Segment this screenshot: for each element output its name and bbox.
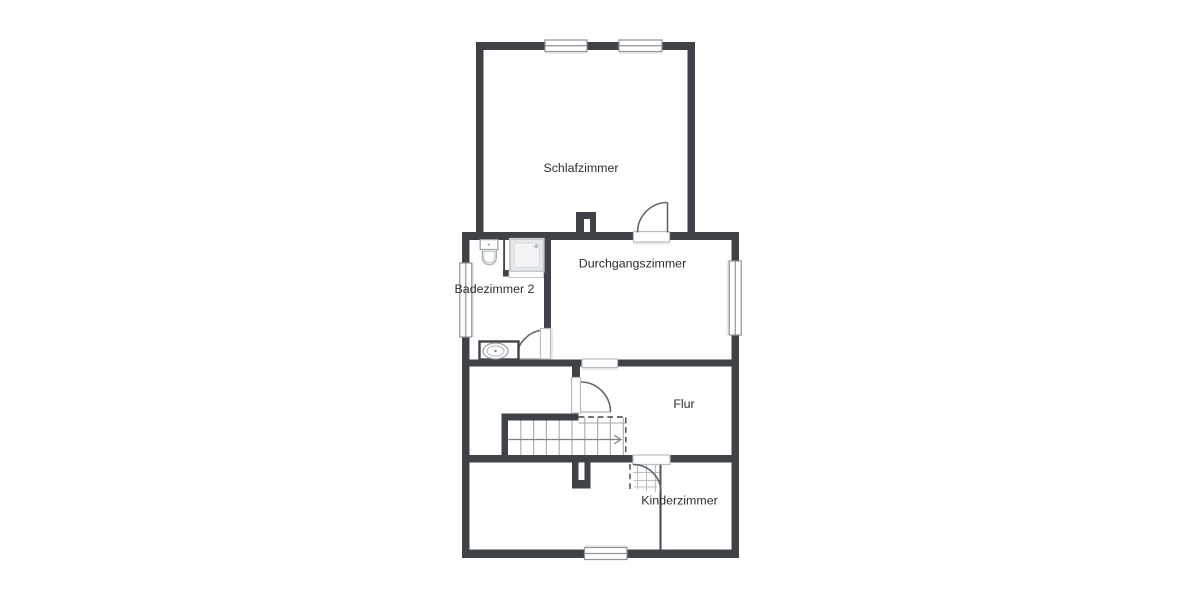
svg-text:Durchgangszimmer: Durchgangszimmer <box>579 257 686 271</box>
svg-text:Badezimmer 2: Badezimmer 2 <box>455 282 535 296</box>
svg-text:Kinderzimmer: Kinderzimmer <box>641 493 717 507</box>
svg-text:Flur: Flur <box>673 397 694 411</box>
svg-text:Schlafzimmer: Schlafzimmer <box>543 161 618 175</box>
